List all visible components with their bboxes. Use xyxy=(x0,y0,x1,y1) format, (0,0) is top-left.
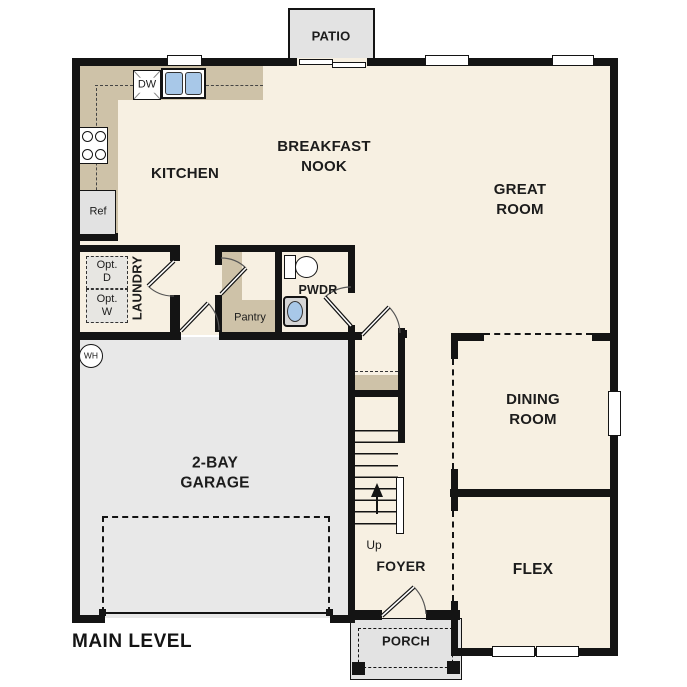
wall-dining-west-stub xyxy=(451,469,458,497)
window-dining xyxy=(608,391,621,436)
room-label-great-room: GREAT ROOM xyxy=(494,180,546,220)
sliding-door-panel xyxy=(299,59,333,65)
stair-handrail xyxy=(396,477,404,534)
stairs-up-label: Up xyxy=(366,538,381,554)
sliding-door-panel xyxy=(332,62,366,68)
wall-east xyxy=(610,58,618,656)
window-kitchen xyxy=(167,55,202,66)
wall-dining-north-stub xyxy=(451,333,484,341)
wall-pantry-east xyxy=(275,245,282,335)
window-great-room xyxy=(425,55,469,66)
optional-washer-label: Opt. W xyxy=(97,293,118,319)
closet-shelf xyxy=(355,375,398,390)
up-arrow-stem xyxy=(376,496,378,514)
cased-opening-dining-west xyxy=(452,359,457,469)
room-label-porch: PORCH xyxy=(382,632,430,649)
wall-nook-south xyxy=(222,245,355,252)
stove-burner xyxy=(95,149,106,160)
stove-burner xyxy=(82,131,93,142)
window-great-room xyxy=(552,55,594,66)
counter-dashed-line xyxy=(95,85,133,86)
room-label-flex: FLEX xyxy=(513,560,553,580)
cased-opening-flex-west xyxy=(452,511,457,601)
garage-door-outline xyxy=(102,516,330,613)
wall-garage-north xyxy=(72,332,181,340)
counter-dashed-line xyxy=(206,85,263,86)
porch-post xyxy=(447,661,460,674)
up-arrow-icon xyxy=(371,483,383,497)
pwdr-sink-basin xyxy=(287,301,303,322)
room-label-garage: 2-BAY GARAGE xyxy=(180,454,249,495)
wall-kitchen-south xyxy=(72,245,170,252)
stove-burner xyxy=(82,149,93,160)
room-label-pwdr: PWDR xyxy=(299,282,338,299)
room-label-pantry: Pantry xyxy=(234,311,266,326)
room-label-patio: PATIO xyxy=(312,27,351,44)
plan-title: MAIN LEVEL xyxy=(72,631,192,653)
laundry-door xyxy=(140,252,185,302)
wall-closet-bottom xyxy=(355,390,398,397)
stair-treads xyxy=(355,430,398,534)
dishwasher-label: DW xyxy=(137,78,157,93)
room-label-foyer: FOYER xyxy=(376,557,425,575)
closet-rod-dashed xyxy=(355,371,398,372)
wall-dining-south xyxy=(450,489,618,497)
window-flex xyxy=(492,646,535,657)
porch-post xyxy=(352,662,365,675)
sink-basin xyxy=(165,72,183,95)
room-label-kitchen: KITCHEN xyxy=(151,164,219,184)
wall-stair-east xyxy=(398,328,405,443)
sink-basin xyxy=(185,72,202,95)
toilet-bowl xyxy=(295,256,318,278)
garage-door-post xyxy=(326,609,333,616)
water-heater-label: WH xyxy=(84,350,98,361)
refrigerator-label: Ref xyxy=(89,205,106,220)
front-door xyxy=(378,582,430,620)
wall-garage-south xyxy=(72,615,105,623)
floor-plan: DW Ref Opt. D Opt. W LAUNDRY WH Up xyxy=(0,0,687,687)
wall-flex-west xyxy=(451,601,458,648)
garage-entry-door xyxy=(177,298,223,336)
stove-burner xyxy=(95,131,106,142)
cased-opening-dining-north xyxy=(484,333,592,338)
wall-stair-west xyxy=(348,332,355,618)
wall-garage-north xyxy=(219,332,362,340)
garage-door-header-line xyxy=(102,612,330,614)
window-flex xyxy=(536,646,579,657)
garage-door-post xyxy=(99,609,106,616)
wall-flex-west-stub xyxy=(451,497,458,511)
pantry-door xyxy=(215,255,260,300)
room-label-dining-room: DINING ROOM xyxy=(506,390,560,430)
room-label-breakfast-nook: BREAKFAST NOOK xyxy=(277,137,370,177)
wall-dining-north xyxy=(592,333,618,341)
stair-closet-door xyxy=(358,300,406,342)
optional-dryer-label: Opt. D xyxy=(97,259,118,285)
